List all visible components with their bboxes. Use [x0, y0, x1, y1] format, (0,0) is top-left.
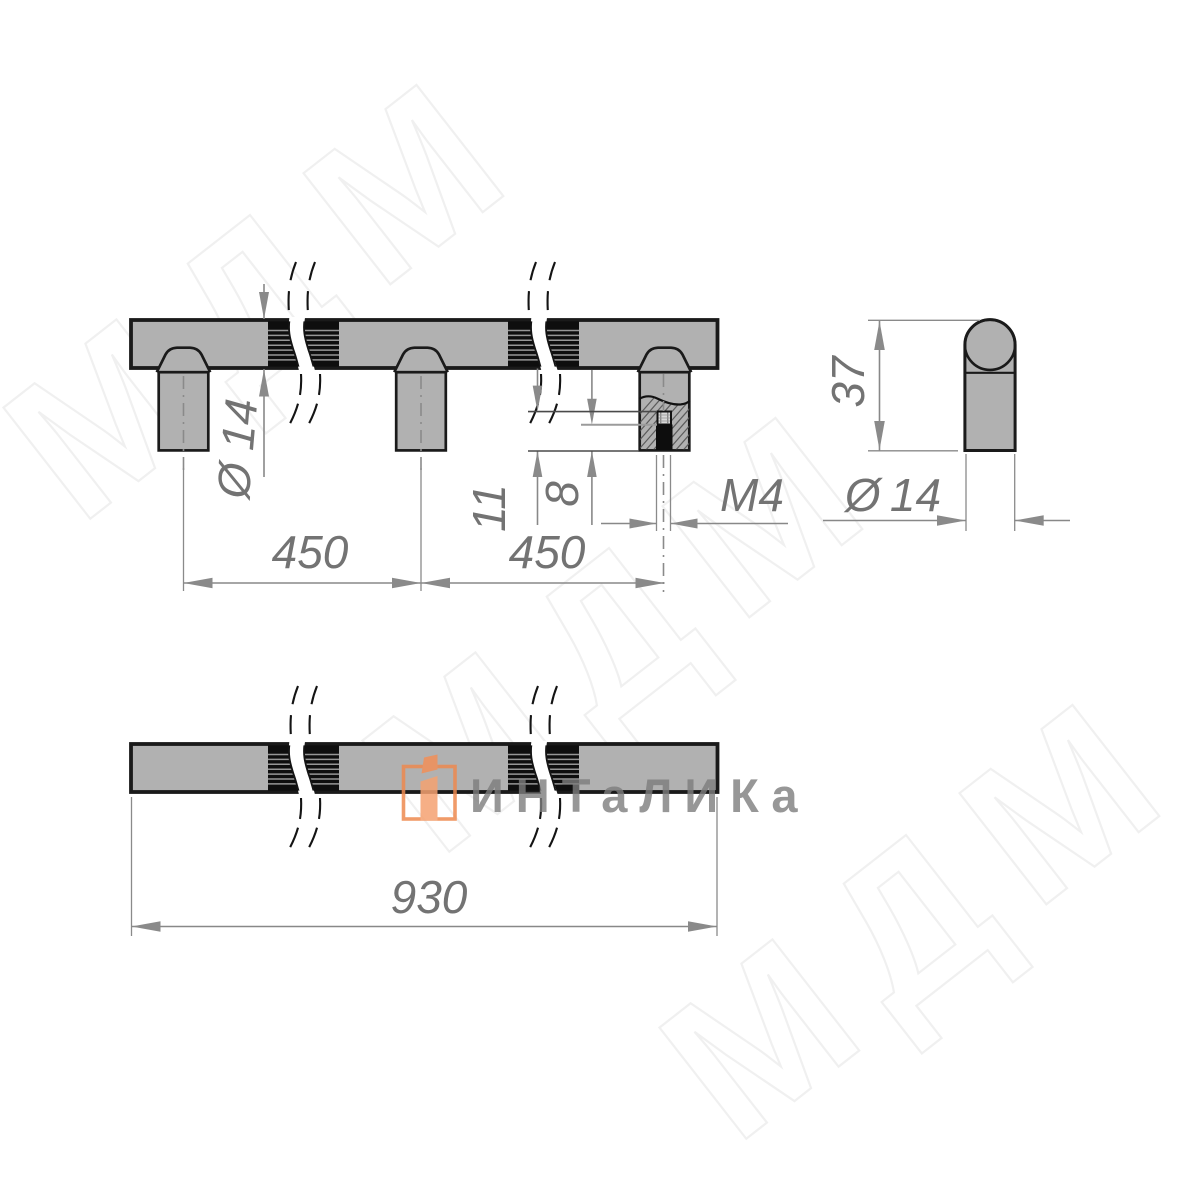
svg-text:Ø 14: Ø 14 [207, 397, 268, 503]
svg-text:450: 450 [272, 526, 349, 578]
svg-text:Ø 14: Ø 14 [843, 469, 941, 521]
svg-text:M4: M4 [720, 469, 784, 521]
svg-text:930: 930 [391, 871, 468, 923]
svg-text:37: 37 [822, 355, 874, 408]
svg-text:11: 11 [463, 484, 515, 532]
svg-text:ИНТаЛИКа: ИНТаЛИКа [470, 769, 810, 822]
svg-text:450: 450 [509, 526, 586, 578]
svg-text:8: 8 [536, 481, 588, 507]
